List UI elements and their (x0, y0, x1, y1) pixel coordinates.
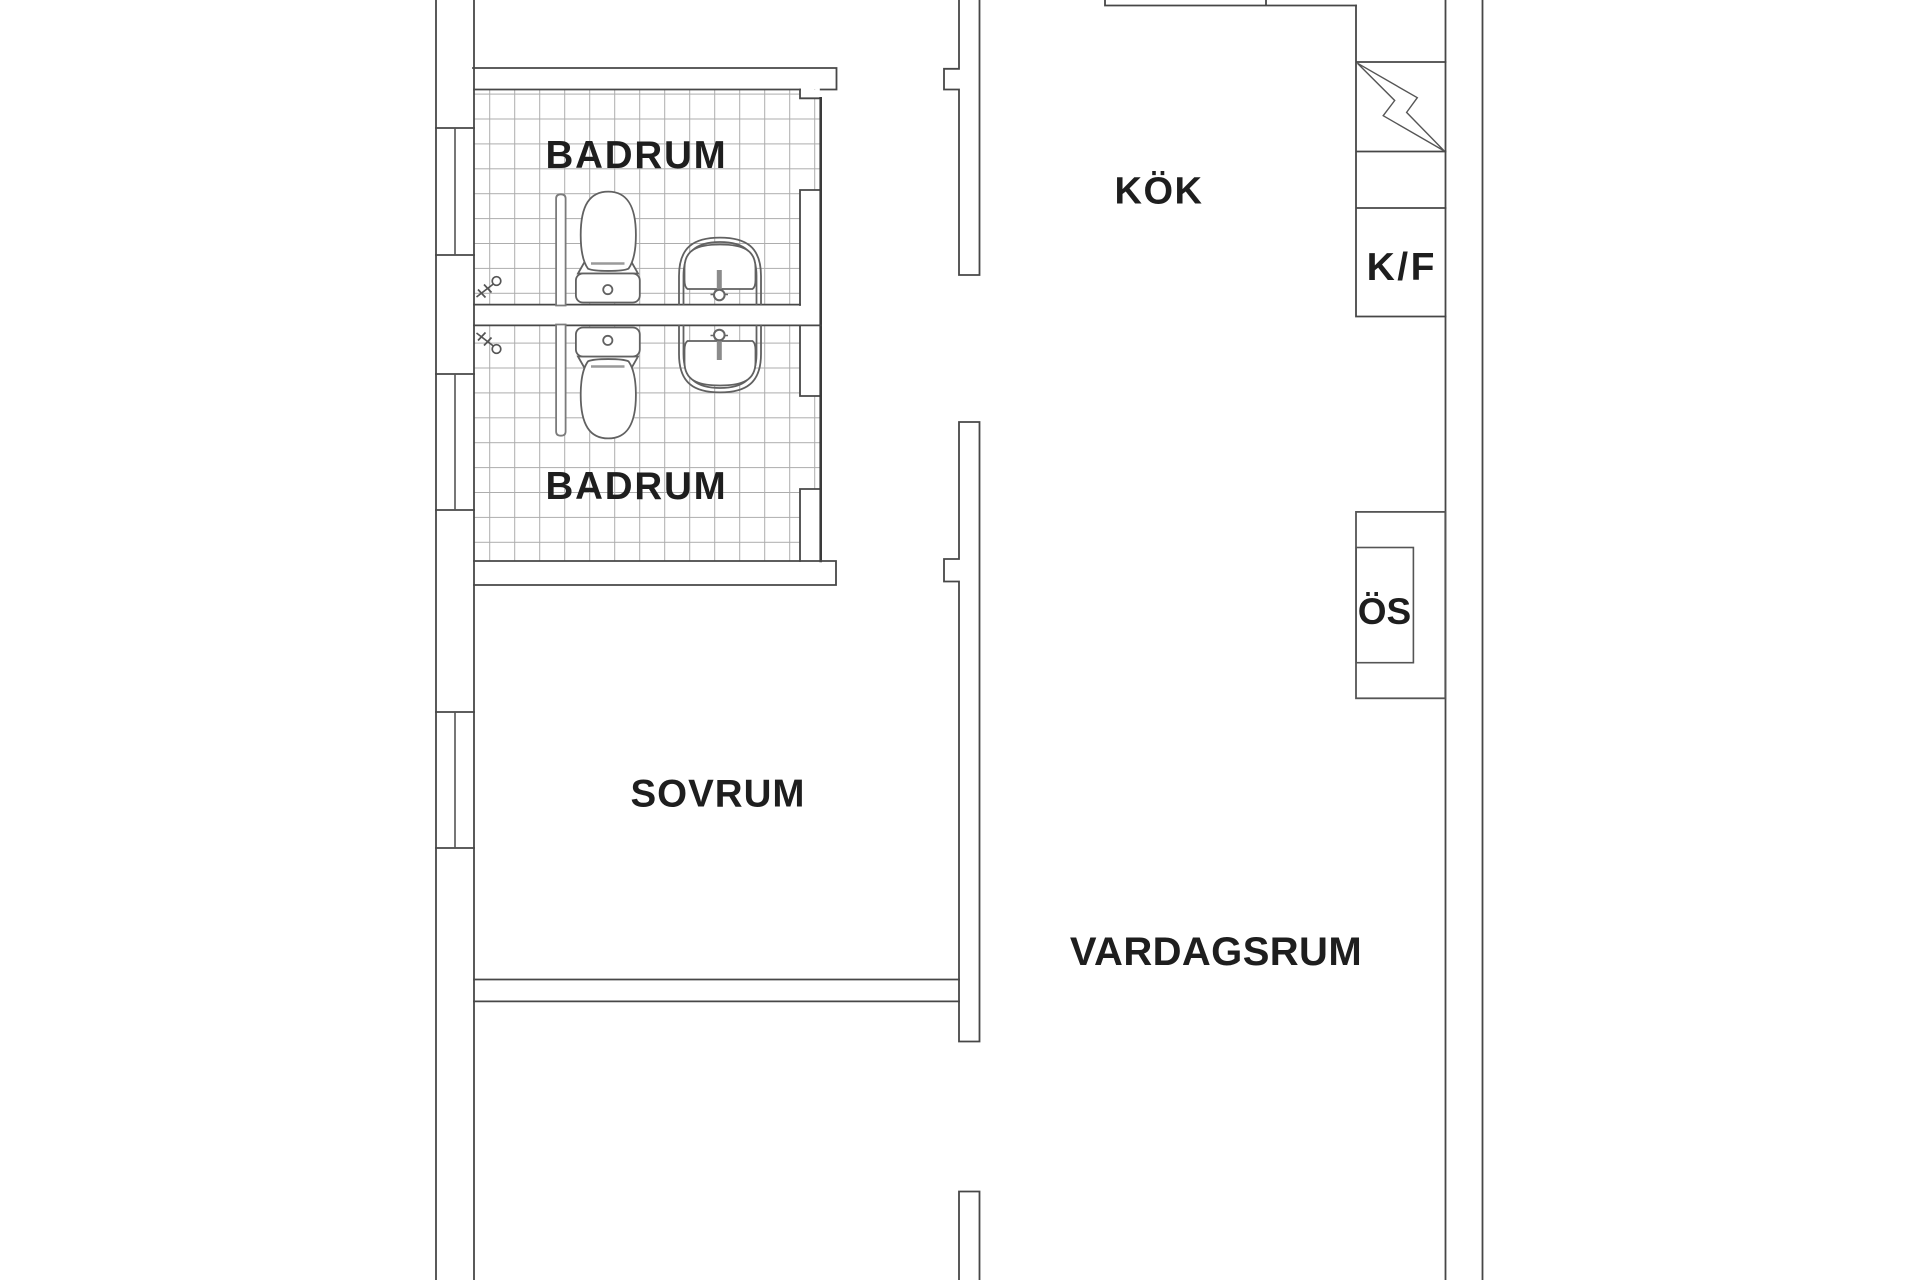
svg-text:KÖK: KÖK (1115, 170, 1204, 213)
svg-text:ÖS: ÖS (1358, 591, 1411, 632)
svg-text:K/F: K/F (1367, 246, 1437, 289)
svg-text:VARDAGSRUM: VARDAGSRUM (1070, 930, 1362, 974)
svg-text:BADRUM: BADRUM (546, 465, 728, 508)
svg-text:SOVRUM: SOVRUM (631, 773, 806, 816)
svg-text:BADRUM: BADRUM (546, 134, 728, 177)
